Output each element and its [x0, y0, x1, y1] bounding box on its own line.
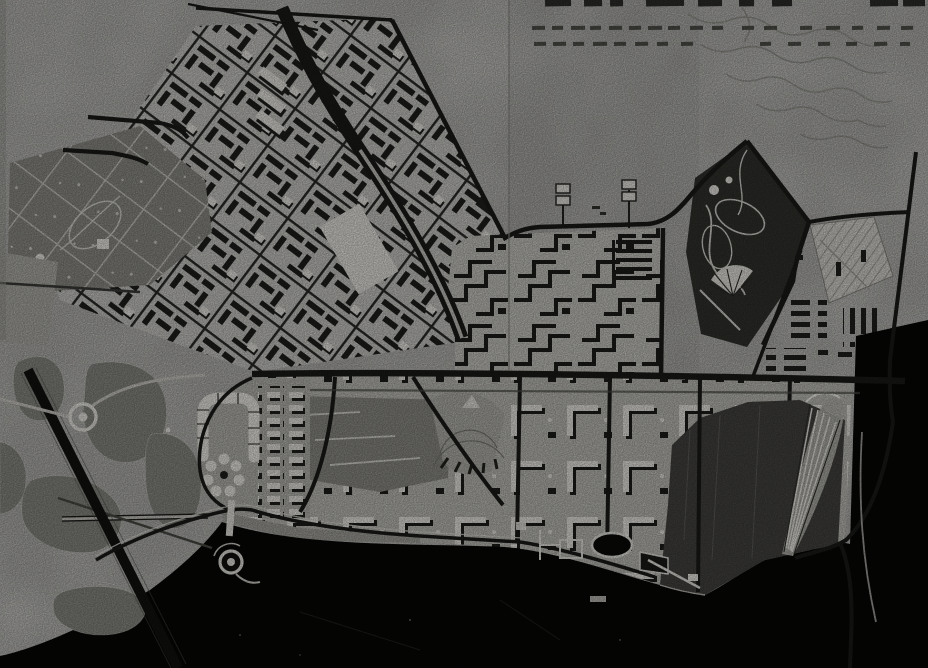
- title-mark: [545, 0, 571, 6]
- shore-kiosk: [516, 522, 526, 530]
- title-mark: [590, 26, 601, 30]
- title-mark: [772, 0, 792, 6]
- title-mark: [788, 42, 801, 46]
- title-mark: [764, 26, 777, 30]
- pier-access-road: [698, 377, 700, 592]
- title-mark: [760, 42, 771, 46]
- park-pavilion: [726, 177, 733, 184]
- title-mark: [648, 26, 662, 30]
- title-mark: [800, 26, 812, 30]
- title-mark: [552, 26, 563, 30]
- title-mark: [877, 26, 890, 30]
- title-mark: [534, 42, 546, 46]
- title-mark: [646, 0, 684, 6]
- title-mark: [614, 42, 626, 46]
- title-mark: [635, 42, 648, 46]
- title-mark: [712, 26, 723, 30]
- mooring-float: [590, 596, 606, 602]
- title-mark: [584, 0, 602, 6]
- central-microdistricts: [448, 228, 663, 378]
- title-mark: [593, 42, 607, 46]
- masterplan-photo: black-and-white aerial photograph of a c…: [0, 0, 928, 668]
- title-mark: [852, 26, 863, 30]
- pier-head: [688, 574, 698, 581]
- park-west-road: [661, 228, 663, 378]
- title-mark: [826, 26, 840, 30]
- title-mark: [818, 42, 830, 46]
- title-mark: [690, 26, 703, 30]
- title-mark: [571, 26, 585, 30]
- harbor-basin: [592, 533, 632, 557]
- park-pavilion: [709, 185, 719, 195]
- title-mark: [870, 0, 898, 6]
- title-mark: [739, 0, 754, 6]
- title-mark: [609, 26, 622, 30]
- title-mark: [629, 26, 641, 30]
- title-mark: [532, 26, 545, 30]
- photo-left-border: [0, 0, 6, 340]
- title-mark: [610, 0, 623, 6]
- title-mark: [657, 42, 668, 46]
- title-mark: [903, 0, 925, 6]
- title-mark: [874, 42, 887, 46]
- slab-row-column: [283, 386, 305, 518]
- title-mark: [846, 42, 857, 46]
- slab-row-column: [258, 386, 280, 518]
- title-mark: [681, 42, 693, 46]
- masterplan-canvas: [0, 0, 928, 668]
- title-mark: [573, 42, 584, 46]
- garden-pavilion: [97, 239, 109, 249]
- title-mark: [742, 26, 754, 30]
- title-mark: [668, 26, 680, 30]
- title-mark: [698, 0, 722, 6]
- title-mark: [900, 42, 910, 46]
- title-mark: [901, 26, 913, 30]
- title-mark: [553, 42, 566, 46]
